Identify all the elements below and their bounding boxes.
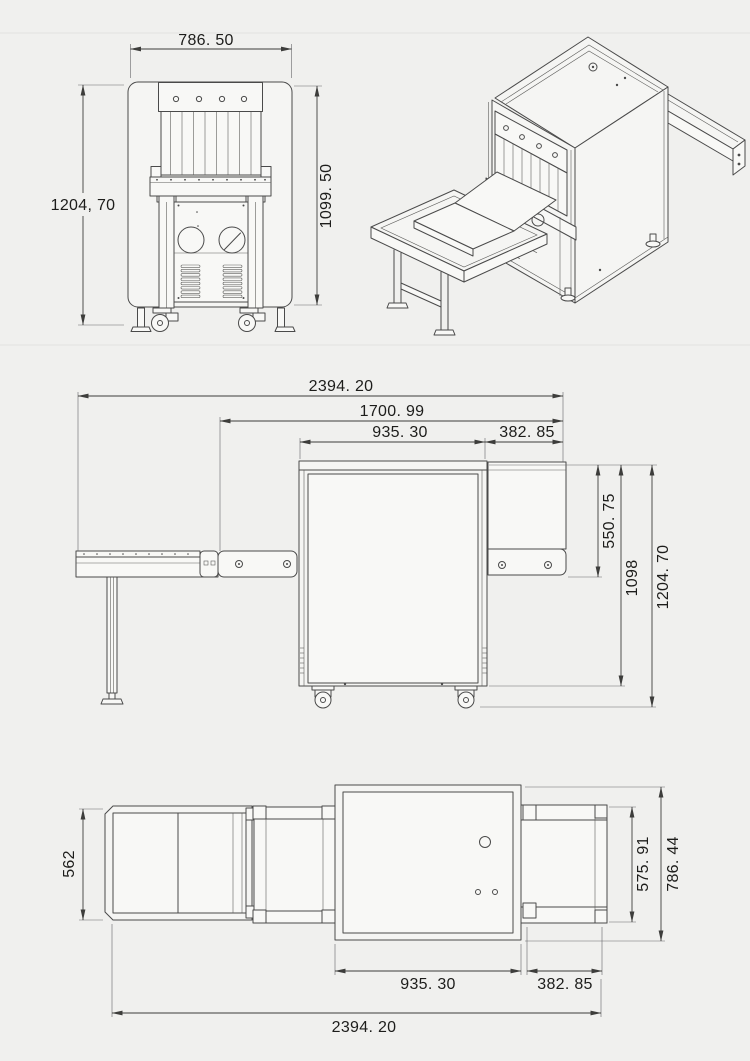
dim-front-height-left-label: 1204, 70 bbox=[51, 197, 116, 214]
dim-front-width-label: 786. 50 bbox=[178, 32, 233, 49]
side-entry-bracket bbox=[218, 551, 297, 577]
plan-exit-frame bbox=[521, 805, 607, 923]
side-exit-section bbox=[488, 462, 566, 575]
dim-side-tunnel-height-label: 550. 75 bbox=[601, 493, 618, 548]
plan-cabinet bbox=[335, 785, 521, 940]
plan-link-frame bbox=[253, 806, 335, 923]
dim-side-conveyor-length-label: 1700. 99 bbox=[360, 403, 425, 420]
isometric-view bbox=[371, 37, 745, 335]
dim-plan-exit-length: 382. 85 bbox=[527, 927, 602, 993]
dim-plan-body-length-label: 935. 30 bbox=[400, 976, 455, 993]
dim-plan-body-width-label: 786. 44 bbox=[665, 836, 682, 891]
dim-front-width: 786. 50 bbox=[131, 32, 292, 78]
side-cabinet bbox=[299, 461, 487, 686]
front-view: 786. 50 1204, 70 1099. 50 bbox=[51, 32, 335, 332]
side-caster-right bbox=[455, 686, 477, 708]
front-foot-left bbox=[131, 308, 151, 332]
plan-view: 562 575. 91 786. 44 935. 30 382. 85 bbox=[61, 785, 682, 1036]
dim-side-total-length-label: 2394. 20 bbox=[309, 378, 374, 395]
dim-side-body-length-label: 935. 30 bbox=[372, 424, 427, 441]
dim-side-exit-length-label: 382. 85 bbox=[499, 424, 554, 441]
drawing-canvas: 786. 50 1204, 70 1099. 50 bbox=[0, 0, 750, 1061]
dim-side-body-length: 935. 30 bbox=[300, 424, 485, 459]
dim-plan-exit-width-label: 575. 91 bbox=[635, 836, 652, 891]
technical-drawing: 786. 50 1204, 70 1099. 50 bbox=[0, 0, 750, 1061]
dim-side-total-height-label: 1204. 70 bbox=[655, 545, 672, 610]
dim-plan-entry-width-label: 562 bbox=[61, 850, 78, 878]
side-entry-table bbox=[76, 551, 297, 704]
dim-plan-total-length-label: 2394. 20 bbox=[332, 1019, 397, 1036]
iso-exit-tray bbox=[668, 94, 745, 175]
dim-plan-exit-width: 575. 91 bbox=[609, 807, 652, 922]
front-foot-right bbox=[275, 308, 295, 332]
plan-entry-table bbox=[105, 806, 254, 920]
dim-front-height-right-label: 1099. 50 bbox=[318, 164, 335, 229]
side-caster-left bbox=[312, 686, 334, 708]
front-caster-left bbox=[152, 308, 179, 332]
side-view: 2394. 20 1700. 99 935. 30 382. 85 550. 7… bbox=[76, 378, 672, 708]
front-caster-right bbox=[239, 308, 266, 332]
dim-plan-entry-width: 562 bbox=[61, 809, 103, 920]
dim-side-exit-length: 382. 85 bbox=[485, 424, 563, 442]
dim-plan-body-length: 935. 30 bbox=[335, 944, 521, 993]
front-electronics-panel bbox=[174, 202, 248, 302]
front-tunnel-header bbox=[159, 83, 263, 112]
dim-front-height-left: 1204, 70 bbox=[51, 85, 124, 325]
side-table-leg bbox=[107, 577, 117, 693]
front-curtains bbox=[161, 112, 261, 176]
dim-plan-exit-length-label: 382. 85 bbox=[537, 976, 592, 993]
dim-front-height-right: 1099. 50 bbox=[294, 86, 335, 305]
dim-side-body-height-label: 1098 bbox=[624, 560, 641, 597]
